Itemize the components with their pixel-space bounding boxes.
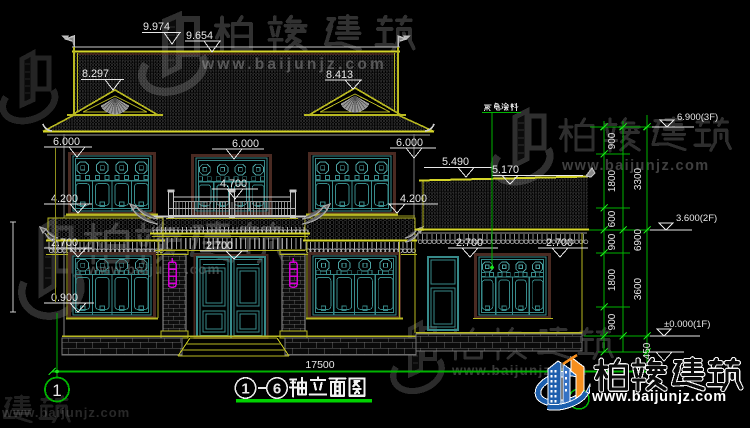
svg-text:6900: 6900: [633, 228, 644, 251]
svg-text:3300: 3300: [633, 167, 644, 190]
svg-text:3600: 3600: [633, 277, 644, 300]
svg-text:8.413: 8.413: [326, 69, 353, 81]
svg-text:1800: 1800: [607, 169, 618, 192]
svg-text:1: 1: [52, 381, 61, 400]
svg-text:9.974: 9.974: [143, 21, 170, 33]
svg-text:5.170: 5.170: [492, 164, 519, 176]
svg-text:900: 900: [607, 313, 618, 330]
svg-text:450: 450: [642, 342, 653, 359]
svg-text:4.200: 4.200: [400, 193, 427, 205]
svg-text:5.490: 5.490: [442, 156, 469, 168]
svg-text:6.000: 6.000: [232, 138, 259, 150]
svg-text:8.297: 8.297: [82, 68, 109, 80]
svg-text:1: 1: [241, 381, 249, 398]
svg-text:3.600(2F): 3.600(2F): [676, 213, 717, 224]
svg-text:4.700: 4.700: [220, 178, 247, 190]
svg-text:2.700: 2.700: [206, 240, 233, 252]
svg-text:±0.000(1F): ±0.000(1F): [664, 319, 710, 330]
svg-text:2.700: 2.700: [456, 237, 483, 249]
svg-text:6.000: 6.000: [53, 136, 80, 148]
svg-text:6.900(3F): 6.900(3F): [677, 112, 718, 123]
svg-text:1800: 1800: [607, 268, 618, 291]
svg-text:2.700: 2.700: [546, 237, 573, 249]
svg-text:17500: 17500: [305, 359, 334, 371]
svg-text:www.baijunjz.com: www.baijunjz.com: [591, 389, 727, 405]
svg-text:6: 6: [273, 381, 281, 398]
svg-text:9.654: 9.654: [186, 30, 213, 42]
svg-text:6.000: 6.000: [396, 137, 423, 149]
svg-text:600: 600: [607, 210, 618, 227]
svg-text:900: 900: [607, 132, 618, 149]
svg-text:900: 900: [607, 233, 618, 250]
